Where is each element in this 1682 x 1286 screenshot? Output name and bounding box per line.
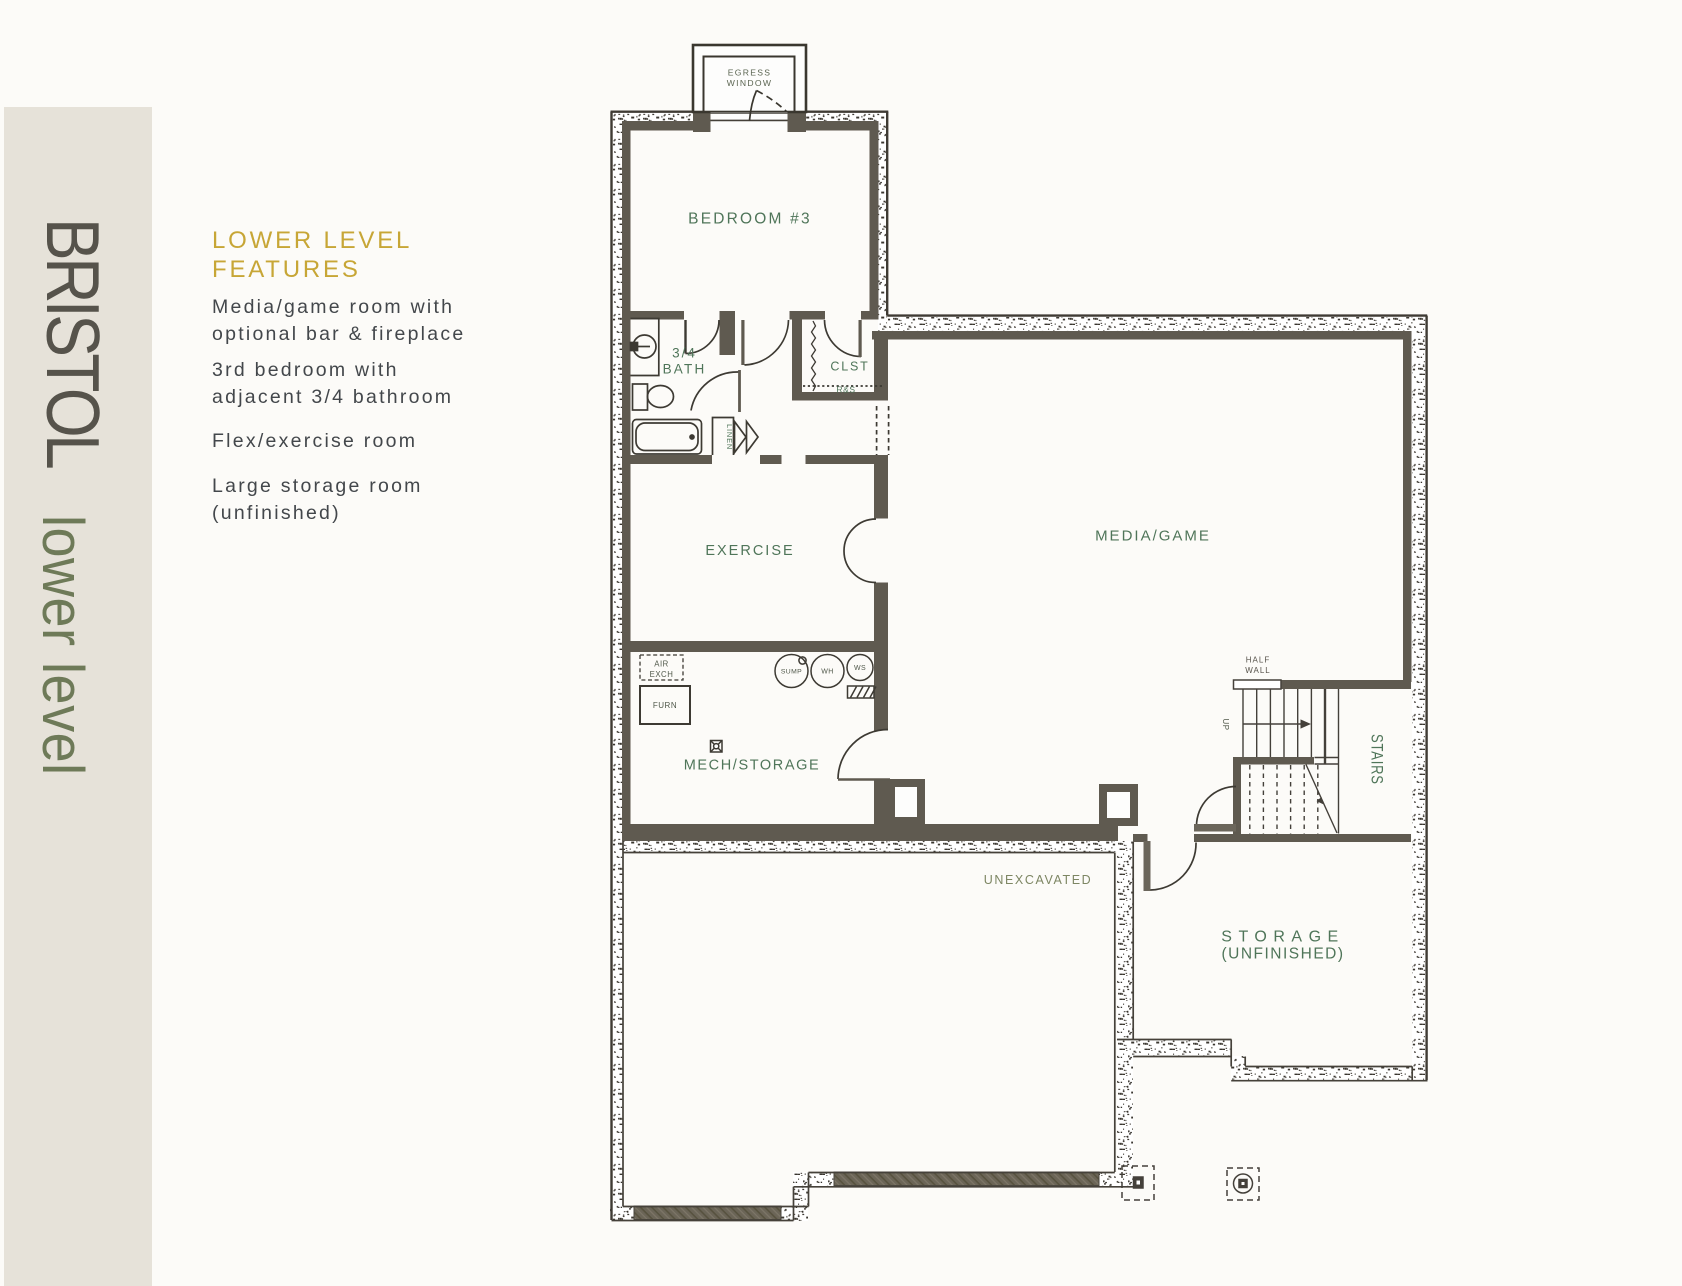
svg-text:BATH: BATH (663, 362, 707, 377)
svg-text:EXCH: EXCH (650, 670, 674, 679)
svg-text:SUMP: SUMP (781, 669, 802, 676)
svg-text:CLST: CLST (830, 360, 869, 374)
svg-text:FURN: FURN (653, 701, 677, 710)
svg-text:STORAGE: STORAGE (1221, 929, 1344, 946)
svg-text:MEDIA/GAME: MEDIA/GAME (1095, 528, 1211, 545)
svg-text:WINDOW: WINDOW (727, 78, 773, 88)
svg-text:MECH/STORAGE: MECH/STORAGE (684, 758, 821, 774)
svg-text:UNEXCAVATED: UNEXCAVATED (984, 873, 1093, 887)
svg-text:(UNFINISHED): (UNFINISHED) (1221, 946, 1344, 963)
svg-text:HALF: HALF (1246, 656, 1270, 665)
svg-text:3/4: 3/4 (672, 346, 697, 361)
svg-text:EGRESS: EGRESS (728, 68, 772, 78)
svg-text:WH: WH (821, 669, 833, 676)
svg-text:BEDROOM #3: BEDROOM #3 (688, 211, 812, 228)
svg-text:UP: UP (1221, 719, 1230, 731)
svg-text:WS: WS (854, 665, 866, 672)
svg-text:R&S: R&S (836, 385, 855, 395)
svg-text:WALL: WALL (1245, 666, 1271, 675)
svg-text:STAIRS: STAIRS (1367, 734, 1386, 785)
svg-text:AIR: AIR (654, 660, 669, 669)
svg-text:LINEN: LINEN (725, 424, 734, 450)
svg-text:EXERCISE: EXERCISE (705, 543, 794, 559)
